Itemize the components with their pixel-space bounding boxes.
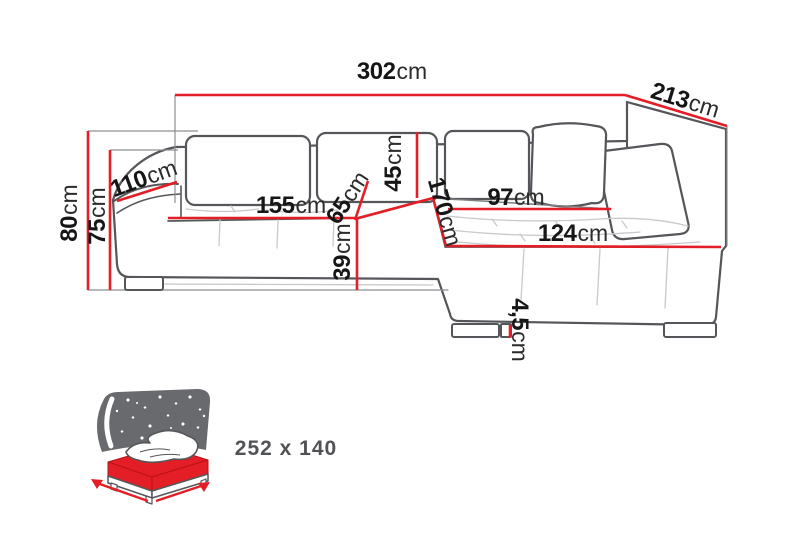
dim-leg-height-label: 4,5cm [507,298,531,362]
sofa-leg [664,323,716,337]
dim-seat-height-label: 39cm [331,223,355,280]
dim-value: 97 [487,184,513,211]
sleeping-dimensions-label: 252 x 140 [235,437,337,461]
dim-unit: cm [84,187,110,218]
dim-total-height-label: 80cm [58,184,82,241]
dim-unit: cm [396,58,427,84]
dim-unit: cm [577,220,608,246]
dim-seat-width-label: 155cm [256,194,326,218]
sofa-leg [452,324,499,337]
dim-chaise-seat-width-label: 97cm [487,186,544,210]
dim-overall-width-label: 302cm [357,60,427,84]
dim-unit: cm [329,223,355,254]
dim-backrest-height-label: 75cm [86,187,110,244]
sofa-drawing [88,102,726,337]
sofa-dimension-diagram: 302cm 213cm 80cm 75cm 110cm 155cm 65cm 4… [0,0,800,533]
dim-chaise-width-label: 124cm [538,222,608,246]
dim-value: 45 [380,166,407,192]
dim-back-cushion-height-label: 45cm [382,134,406,191]
dim-value: 75 [84,219,111,245]
dim-value: 124 [538,220,577,247]
dim-value: 155 [256,192,295,219]
dim-value: 39 [329,255,356,281]
dim-value: 4,5 [506,298,533,330]
dim-value: 80 [56,216,83,242]
sofa-bed-icon [91,389,210,504]
sofa-leg [125,277,163,290]
dimension-line-124 [446,246,721,247]
dim-value: 302 [357,58,396,85]
dim-unit: cm [380,134,406,165]
dim-unit: cm [514,184,545,210]
dim-unit: cm [56,184,82,215]
dim-unit: cm [507,331,533,362]
